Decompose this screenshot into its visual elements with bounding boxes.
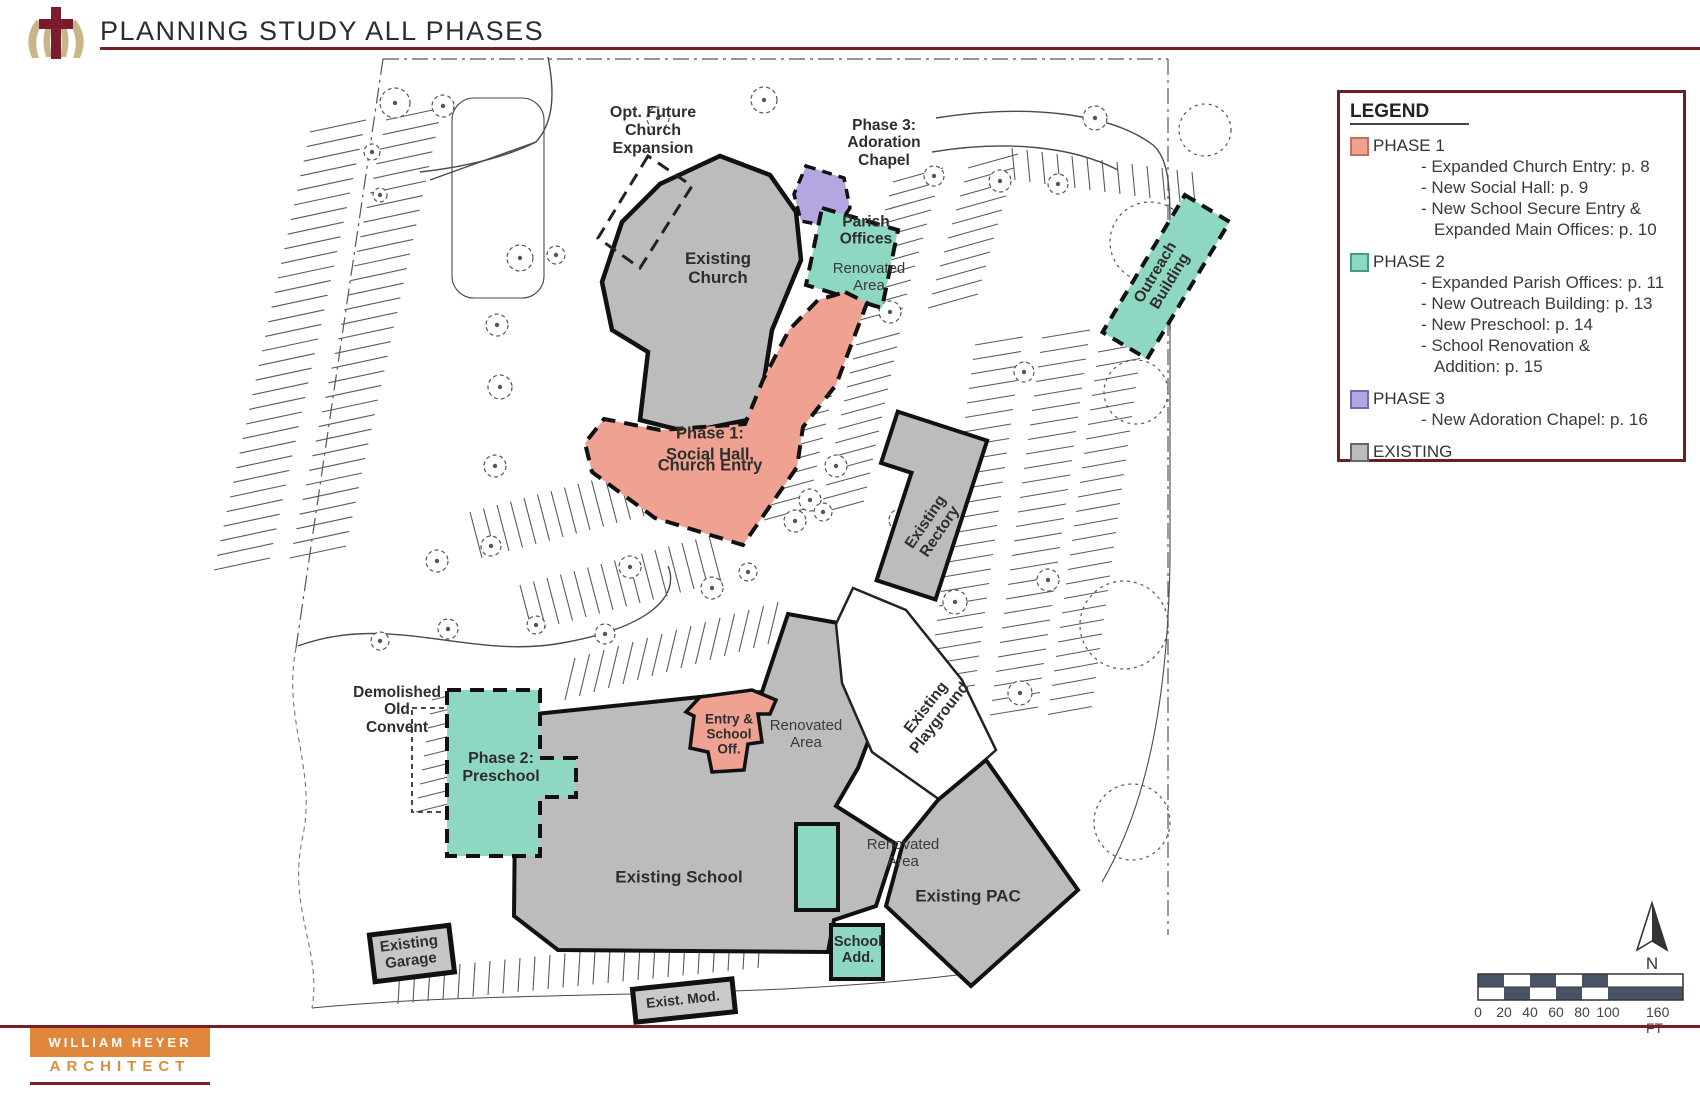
legend-item: - New Outreach Building: p. 13	[1350, 293, 1673, 314]
scale-tick-100: 100	[1596, 1004, 1619, 1020]
church-logo-icon	[28, 7, 83, 59]
page-title: PLANNING STUDY ALL PHASES	[100, 16, 544, 47]
wetland-boundary	[293, 648, 314, 1008]
phase2-swatch	[1350, 253, 1369, 272]
legend-item: - Expanded Church Entry: p. 8	[1350, 156, 1673, 177]
scale-tick-160: 160 FT	[1646, 1004, 1682, 1036]
firm-logo-title: ARCHITECT	[30, 1058, 210, 1080]
title-rule	[100, 47, 1700, 50]
phase3-label: PHASE 3	[1373, 389, 1445, 409]
scale-bar	[1478, 974, 1683, 1000]
firm-logo-name: WILLIAM HEYER	[30, 1028, 210, 1057]
legend-item: Expanded Main Offices: p. 10	[1350, 219, 1673, 240]
legend-title: LEGEND	[1350, 101, 1469, 125]
phase3-swatch	[1350, 390, 1369, 409]
existing-label: EXISTING	[1373, 442, 1452, 462]
legend-item: - New Preschool: p. 14	[1350, 314, 1673, 335]
legend-item: Addition: p. 15	[1350, 356, 1673, 377]
legend-item: - Expanded Parish Offices: p. 11	[1350, 272, 1673, 293]
legend-item: - New School Secure Entry &	[1350, 198, 1673, 219]
firm-logo-rule	[30, 1082, 210, 1085]
bottom-rule	[0, 1025, 1700, 1028]
scale-tick-20: 20	[1496, 1004, 1512, 1020]
phase1-swatch	[1350, 137, 1369, 156]
scale-tick-80: 80	[1574, 1004, 1590, 1020]
legend-item: - New Adoration Chapel: p. 16	[1350, 409, 1673, 430]
legend-phase1-row: PHASE 1	[1350, 136, 1673, 156]
phase2-label: PHASE 2	[1373, 252, 1445, 272]
scale-tick-40: 40	[1522, 1004, 1538, 1020]
renovated-area-pac-block	[796, 824, 838, 910]
legend-panel: LEGEND PHASE 1 - Expanded Church Entry: …	[1337, 90, 1686, 462]
existing-swatch	[1350, 443, 1369, 462]
planning-study-page: PLANNING STUDY ALL PHASES Opt. Future Ch…	[0, 0, 1700, 1100]
phase1-label: PHASE 1	[1373, 136, 1445, 156]
school-addition-block	[831, 925, 883, 979]
legend-phase2-row: PHASE 2	[1350, 252, 1673, 272]
north-label: N	[1646, 954, 1658, 974]
existing-rectory-building	[846, 412, 987, 600]
legend-item: - New Social Hall: p. 9	[1350, 177, 1673, 198]
existing-pac-building	[886, 760, 1078, 986]
legend-item: - School Renovation &	[1350, 335, 1673, 356]
scale-tick-60: 60	[1548, 1004, 1564, 1020]
legend-existing-row: EXISTING	[1350, 442, 1673, 462]
existing-garage-building	[369, 925, 454, 981]
scale-tick-0: 0	[1474, 1004, 1482, 1020]
outreach-building	[1103, 195, 1230, 359]
north-arrow-icon	[1637, 903, 1667, 950]
legend-phase3-row: PHASE 3	[1350, 389, 1673, 409]
exist-mod-chip	[632, 979, 735, 1022]
